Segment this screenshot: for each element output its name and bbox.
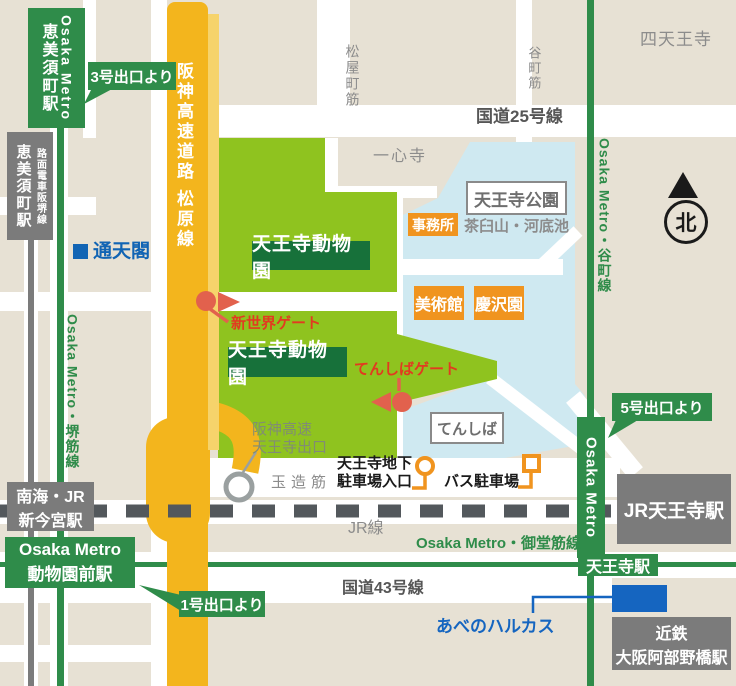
harukas-building-icon bbox=[612, 585, 667, 612]
underground-parking-sign-pole bbox=[412, 474, 425, 488]
isshinji-label: 一心寺 bbox=[373, 148, 427, 167]
north-arrow-icon bbox=[668, 172, 698, 198]
hill-pond-label: 茶臼山・河底池 bbox=[464, 218, 569, 236]
tenshiba-box: てんしば bbox=[430, 412, 504, 444]
underground-parking-label: 天王寺地下 駐車場入口 bbox=[337, 455, 412, 490]
park-office-text: 事務所 bbox=[412, 215, 454, 235]
underground-parking-sign-icon bbox=[417, 458, 433, 474]
station-kintetsu-name: 大阪阿部野橋駅 bbox=[615, 644, 727, 668]
station-ebisucho-tram-line: 路面電車阪堺線 bbox=[35, 148, 45, 225]
exit5-bubble-tail bbox=[608, 420, 638, 438]
expressway-exit-line1: 阪神高速 bbox=[252, 421, 327, 439]
tenshiba-gate-label: てんしばゲート bbox=[354, 361, 459, 379]
expressway-exit-label: 阪神高速 天王寺出口 bbox=[252, 421, 327, 456]
station-tennoji-metro: 天王寺駅 bbox=[578, 554, 658, 576]
keitakuen-box: 慶沢園 bbox=[474, 286, 524, 320]
jr-line-label: JR線 bbox=[348, 520, 384, 539]
compass-north-badge: 北 bbox=[664, 200, 708, 244]
shinsekai-gate-pin-icon bbox=[196, 291, 216, 311]
zoo-label-north: 天王寺動物園 bbox=[252, 241, 370, 270]
tsutenkaku-marker-icon bbox=[73, 244, 88, 259]
shinsekai-gate-label: 新世界ゲート bbox=[231, 315, 321, 333]
expressway-exit-marker-icon bbox=[226, 474, 252, 500]
metro-bar-label: Osaka Metro bbox=[583, 437, 600, 538]
station-shin-imamiya-operator: 南海・JR bbox=[16, 483, 84, 507]
tennoji-zoo-access-map: Osaka Metro Osaka Metro 恵美須町駅 路面電車阪堺線 恵美… bbox=[0, 0, 736, 686]
station-kintetsu-operator: 近鉄 bbox=[655, 620, 687, 644]
station-kintetsu-abenobashi: 近鉄 大阪阿部野橋駅 bbox=[612, 617, 731, 670]
station-tennoji-metro-name: 天王寺駅 bbox=[586, 553, 650, 577]
station-dobutsuen-mae: Osaka Metro 動物園前駅 bbox=[5, 537, 135, 588]
museum-box: 美術館 bbox=[414, 286, 464, 320]
underground-parking-line2: 駐車場入口 bbox=[337, 473, 412, 491]
harukas-connector bbox=[533, 597, 612, 613]
exit3-bubble-tail bbox=[84, 88, 114, 104]
station-jr-tennoji-name: JR天王寺駅 bbox=[624, 496, 724, 523]
park-name-box: 天王寺公園 bbox=[466, 181, 567, 215]
museum-text: 美術館 bbox=[415, 291, 463, 315]
exit1-label: 1号出口より bbox=[180, 594, 263, 615]
tanimachi-suji-label: 谷町筋 bbox=[526, 46, 541, 91]
tanimachi-line-label: Osaka Metro・谷町線 bbox=[596, 138, 613, 293]
expressway-label: 阪神高速道路 松原線 bbox=[173, 62, 193, 250]
station-ebisucho-metro-operator: Osaka Metro bbox=[60, 15, 74, 121]
tenshiba-gate-pin-icon bbox=[392, 392, 412, 412]
underground-parking-line1: 天王寺地下 bbox=[337, 455, 412, 473]
tamatsukuri-suji-label: 玉造筋 bbox=[271, 474, 331, 492]
metro-bar-tennoji: Osaka Metro bbox=[577, 417, 605, 558]
sakaisuji-line-label: Osaka Metro・堺筋線 bbox=[64, 314, 81, 469]
exit1-bubble-tail bbox=[139, 585, 181, 611]
compass-north-text: 北 bbox=[676, 207, 697, 237]
tenshiba-text: てんしば bbox=[437, 418, 497, 439]
exit5-bubble: 5号出口より bbox=[612, 393, 712, 421]
station-shin-imamiya: 南海・JR 新今宮駅 bbox=[7, 482, 94, 531]
harukas-label: あべのハルカス bbox=[436, 617, 555, 637]
station-ebisucho-tram: 路面電車阪堺線 恵美須町駅 bbox=[7, 132, 53, 240]
station-dobutsuen-mae-operator: Osaka Metro bbox=[19, 540, 121, 560]
keitakuen-text: 慶沢園 bbox=[475, 291, 523, 315]
matsuyamachi-suji-label: 松屋町筋 bbox=[344, 44, 361, 108]
exit3-bubble: 3号出口より bbox=[88, 62, 176, 90]
station-ebisucho-tram-name: 恵美須町駅 bbox=[16, 144, 31, 229]
zoo-label-south-text: 天王寺動物園 bbox=[228, 335, 347, 389]
shitennoji-label: 四天王寺 bbox=[640, 30, 712, 50]
park-office-box: 事務所 bbox=[408, 213, 458, 236]
shinsekai-gate-arrow-icon bbox=[218, 292, 240, 312]
station-jr-tennoji: JR天王寺駅 bbox=[617, 474, 731, 544]
zoo-label-north-text: 天王寺動物園 bbox=[252, 229, 370, 283]
expressway-exit-line2: 天王寺出口 bbox=[252, 439, 327, 457]
bus-parking-sign-pole bbox=[518, 471, 531, 487]
zoo-label-south: 天王寺動物園 bbox=[228, 347, 347, 377]
park-name-text: 天王寺公園 bbox=[474, 186, 559, 211]
route43-label: 国道43号線 bbox=[342, 580, 424, 599]
bus-parking-label: バス駐車場 bbox=[444, 473, 519, 491]
station-ebisucho-metro: Osaka Metro 恵美須町駅 bbox=[28, 8, 85, 128]
station-dobutsuen-mae-name: 動物園前駅 bbox=[28, 560, 113, 585]
exit5-label: 5号出口より bbox=[620, 397, 703, 418]
exit3-label: 3号出口より bbox=[90, 66, 173, 87]
tenshiba-gate-arrow-icon bbox=[371, 392, 391, 412]
exit1-bubble: 1号出口より bbox=[179, 591, 265, 617]
bus-parking-sign-icon bbox=[524, 456, 539, 471]
route25-label: 国道25号線 bbox=[476, 107, 563, 127]
midosuji-line-label: Osaka Metro・御堂筋線 bbox=[416, 535, 581, 553]
tsutenkaku-label: 通天閣 bbox=[93, 241, 150, 263]
station-ebisucho-metro-name: 恵美須町駅 bbox=[40, 23, 56, 113]
station-shin-imamiya-name: 新今宮駅 bbox=[18, 507, 82, 531]
